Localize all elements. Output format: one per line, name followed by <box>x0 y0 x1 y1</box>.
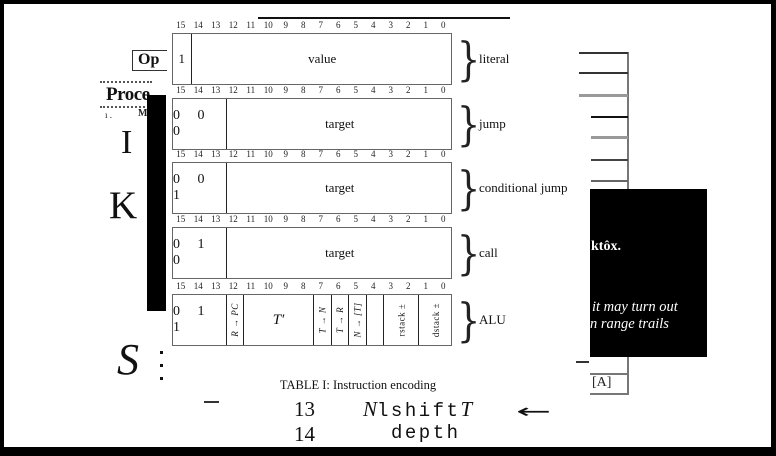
bitfield-n-t-: N → [T] <box>348 295 366 345</box>
bitfield-text: target <box>325 116 354 132</box>
bit-index-label: 2 <box>400 281 418 292</box>
bitfield-r-pc: R → PC <box>226 295 244 345</box>
bitfield-0-0-1: 0 0 1 <box>173 163 226 213</box>
bit-index-label: 9 <box>277 20 295 31</box>
bitfield-text: R → PC <box>230 303 240 337</box>
bitfield-target: target <box>226 163 454 213</box>
panel-text-clipped: ktôx. <box>591 239 621 255</box>
bitfield-0-1-1: 0 1 1 <box>173 295 226 345</box>
bitfield-unused <box>366 295 384 345</box>
bit-index-label: 12 <box>225 214 243 225</box>
bit-index-label: 9 <box>277 149 295 160</box>
bit-index-label: 13 <box>207 20 225 31</box>
bit-index-label: 15 <box>172 281 190 292</box>
left-arrow-icon: ← <box>516 399 551 423</box>
bitfield-text: 0 0 1 <box>173 172 233 204</box>
bit-index-label: 5 <box>347 281 365 292</box>
bitfield-text: 1 <box>179 51 186 67</box>
listing-line-code: NlshiftT <box>363 397 472 422</box>
bit-index-label: 0 <box>435 85 453 96</box>
bit-index-row: 1514131211109876543210 <box>172 214 452 225</box>
listing-line-number: 14 <box>289 422 315 447</box>
bitfield-t-r: T → R <box>331 295 349 345</box>
bit-index-label: 5 <box>347 214 365 225</box>
bit-index-label: 10 <box>260 85 278 96</box>
bit-index-label: 12 <box>225 281 243 292</box>
black-overlay-panel: ktôx. it may turn out n range trails <box>590 189 707 357</box>
dotted-glyph-artifact <box>160 351 163 380</box>
side-table-line <box>591 159 628 161</box>
bit-index-label: 14 <box>190 281 208 292</box>
bitfield-text: 0 0 0 <box>173 108 233 140</box>
bit-index-label: 1 <box>417 20 435 31</box>
bitfield-text: dstack ± <box>431 303 441 337</box>
bit-index-label: 10 <box>260 20 278 31</box>
bit-index-label: 3 <box>382 214 400 225</box>
bit-index-label: 4 <box>365 149 383 160</box>
bit-index-label: 9 <box>277 214 295 225</box>
bitfield-row: 1value <box>172 33 452 85</box>
bit-index-label: 5 <box>347 85 365 96</box>
bit-index-label: 9 <box>277 281 295 292</box>
bitfield-text: T′ <box>273 312 285 329</box>
row-label-call: call <box>479 227 498 279</box>
row-brace: } <box>457 227 480 279</box>
bitfield-row: 0 0 0target <box>172 98 452 150</box>
bit-index-label: 7 <box>312 281 330 292</box>
listing-line-number: 13 <box>289 397 315 422</box>
bitfield-rstack-: rstack ± <box>383 295 418 345</box>
bit-index-label: 13 <box>207 149 225 160</box>
bitfield-text: 0 1 0 <box>173 237 233 269</box>
code-segment: N <box>363 397 377 422</box>
dash-artifact <box>576 361 589 363</box>
bit-index-label: 4 <box>365 281 383 292</box>
bit-index-label: 1 <box>417 85 435 96</box>
bit-index-label: 8 <box>295 149 313 160</box>
side-table-cell: [A] <box>592 375 611 391</box>
bitfield-text: rstack ± <box>396 304 406 337</box>
side-table-line <box>579 72 628 74</box>
bitfield-t-n: T → N <box>313 295 331 345</box>
bit-index-label: 13 <box>207 281 225 292</box>
bit-index-label: 11 <box>242 214 260 225</box>
op-label: Op <box>138 51 159 68</box>
bit-index-label: 2 <box>400 214 418 225</box>
bitfield-row: 0 0 1target <box>172 162 452 214</box>
bit-index-label: 1 <box>417 214 435 225</box>
bit-index-label: 5 <box>347 149 365 160</box>
text-fragment: ı . <box>105 110 112 120</box>
bit-index-label: 8 <box>295 281 313 292</box>
side-table-line <box>579 94 628 97</box>
bit-index-label: 7 <box>312 20 330 31</box>
bit-index-label: 1 <box>417 281 435 292</box>
bit-index-label: 6 <box>330 281 348 292</box>
panel-text-clipped: n range trails <box>590 316 669 333</box>
drop-capital-K: K <box>109 183 137 228</box>
bit-index-label: 10 <box>260 214 278 225</box>
panel-text-clipped: it may turn out <box>592 299 678 316</box>
row-brace: } <box>457 294 480 346</box>
bit-index-label: 15 <box>172 149 190 160</box>
dash-artifact <box>204 401 219 403</box>
bit-index-label: 14 <box>190 85 208 96</box>
bitfield-dstack-: dstack ± <box>418 295 453 345</box>
side-table-line <box>591 136 628 139</box>
bit-index-label: 11 <box>242 85 260 96</box>
bit-index-label: 8 <box>295 85 313 96</box>
side-table-line <box>590 393 628 395</box>
side-table-line <box>591 180 628 182</box>
bit-index-label: 10 <box>260 149 278 160</box>
row-brace: } <box>457 33 480 85</box>
frame-border-bottom <box>0 447 776 456</box>
bit-index-label: 2 <box>400 20 418 31</box>
bitfield-text: N → [T] <box>352 302 362 337</box>
bit-index-row: 1514131211109876543210 <box>172 281 452 292</box>
bitfield-target: target <box>226 99 454 149</box>
side-table-line <box>591 116 628 118</box>
bitfield-row: 0 1 0target <box>172 227 452 279</box>
side-table-line <box>579 52 628 54</box>
bitfield-0-0-0: 0 0 0 <box>173 99 226 149</box>
bit-index-label: 4 <box>365 20 383 31</box>
bit-index-label: 0 <box>435 214 453 225</box>
frame-border-right <box>771 0 776 456</box>
drop-capital-I: I <box>121 124 132 162</box>
bitfield-text: 0 1 1 <box>173 304 233 336</box>
bit-index-label: 15 <box>172 20 190 31</box>
bit-index-label: 9 <box>277 85 295 96</box>
row-label-ALU: ALU <box>479 294 506 346</box>
bit-index-label: 7 <box>312 214 330 225</box>
bit-index-label: 13 <box>207 214 225 225</box>
bit-index-label: 14 <box>190 20 208 31</box>
frame-border-left <box>0 0 4 456</box>
bit-index-label: 13 <box>207 85 225 96</box>
bit-index-row: 1514131211109876543210 <box>172 85 452 96</box>
paper-page-screenshot: [A] Op Proce ı . M I K S 151413121110987… <box>0 0 776 456</box>
bit-index-label: 7 <box>312 149 330 160</box>
code-segment: depth <box>391 422 461 444</box>
black-bar-artifact <box>147 95 166 311</box>
bit-index-label: 15 <box>172 214 190 225</box>
bit-index-label: 6 <box>330 149 348 160</box>
code-segment: lshift <box>377 400 460 422</box>
listing-line-code: depth <box>391 422 461 444</box>
bit-index-label: 14 <box>190 214 208 225</box>
bit-index-label: 8 <box>295 20 313 31</box>
bit-index-label: 15 <box>172 85 190 96</box>
bit-index-label: 0 <box>435 20 453 31</box>
bitfield-text: target <box>325 180 354 196</box>
bit-index-label: 2 <box>400 85 418 96</box>
bitfield-text: value <box>308 51 336 67</box>
row-brace: } <box>457 162 480 214</box>
bit-index-row: 1514131211109876543210 <box>172 20 452 31</box>
bitfield-t-: T′ <box>243 295 313 345</box>
bitfield-text: T → N <box>317 307 327 334</box>
bit-index-label: 3 <box>382 149 400 160</box>
drop-capital-S: S <box>117 334 139 385</box>
bit-index-label: 3 <box>382 20 400 31</box>
row-label-literal: literal <box>479 33 509 85</box>
bit-index-label: 4 <box>365 85 383 96</box>
bit-index-label: 3 <box>382 85 400 96</box>
bitfield-1: 1 <box>173 34 191 84</box>
bitfield-text: T → R <box>335 307 345 333</box>
frame-border-top <box>0 0 776 4</box>
bit-index-label: 6 <box>330 214 348 225</box>
bit-index-label: 12 <box>225 149 243 160</box>
table-caption: TABLE I: Instruction encoding <box>250 378 466 393</box>
bit-index-label: 6 <box>330 20 348 31</box>
bit-index-label: 12 <box>225 20 243 31</box>
bit-index-label: 0 <box>435 149 453 160</box>
bit-index-label: 7 <box>312 85 330 96</box>
heading-dotted-rule-top <box>100 81 152 83</box>
row-brace: } <box>457 98 480 150</box>
bit-index-label: 11 <box>242 149 260 160</box>
code-segment: T <box>460 397 472 422</box>
row-label-conditional-jump: conditional jump <box>479 162 567 214</box>
bit-index-label: 0 <box>435 281 453 292</box>
bit-index-label: 11 <box>242 20 260 31</box>
bit-index-label: 8 <box>295 214 313 225</box>
bit-index-label: 4 <box>365 214 383 225</box>
bitfield-text: target <box>325 245 354 261</box>
bitfield-row: 0 1 1R → PCT′T → NT → RN → [T]rstack ±ds… <box>172 294 452 346</box>
bit-index-label: 2 <box>400 149 418 160</box>
bit-index-label: 11 <box>242 281 260 292</box>
bitfield-value: value <box>191 34 454 84</box>
section-heading-clipped: Proce <box>106 84 150 106</box>
bit-index-label: 12 <box>225 85 243 96</box>
bit-index-label: 1 <box>417 149 435 160</box>
bit-index-label: 3 <box>382 281 400 292</box>
bitfield-0-1-0: 0 1 0 <box>173 228 226 278</box>
bit-index-label: 14 <box>190 149 208 160</box>
bit-index-label: 6 <box>330 85 348 96</box>
op-table-header-cell: Op <box>132 50 170 71</box>
row-label-jump: jump <box>479 98 506 150</box>
bit-index-row: 1514131211109876543210 <box>172 149 452 160</box>
bit-index-label: 5 <box>347 20 365 31</box>
bitfield-target: target <box>226 228 454 278</box>
bit-index-label: 10 <box>260 281 278 292</box>
